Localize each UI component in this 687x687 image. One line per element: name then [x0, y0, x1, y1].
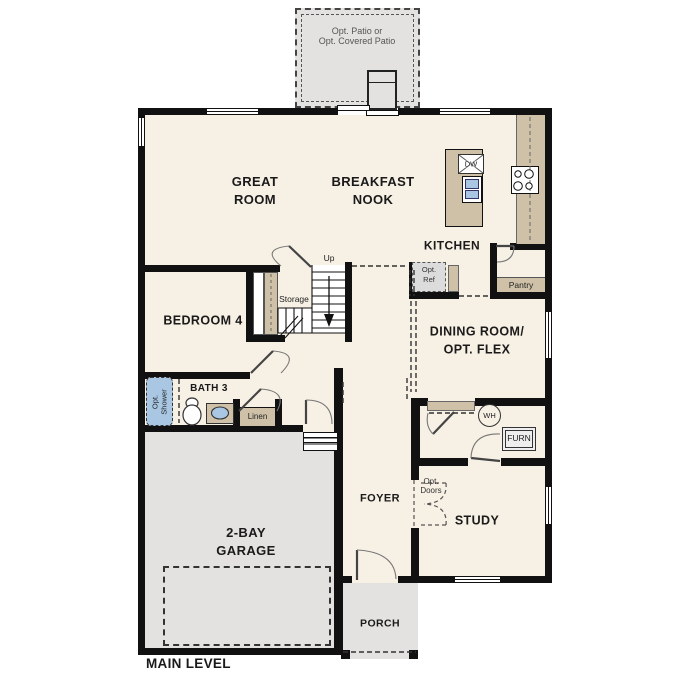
water-heater-label: WH — [483, 411, 496, 420]
kitchen-window — [440, 108, 490, 115]
wall-stair-right — [345, 262, 352, 342]
great-room-window — [207, 108, 258, 115]
wall-garage-bottom — [138, 648, 343, 655]
opt-ref-line2: Ref — [413, 275, 445, 285]
wall-closet-bottom — [246, 335, 285, 342]
patio-label: Opt. Patio or Opt. Covered Patio — [319, 26, 396, 46]
bath3-label: BATH 3 — [190, 382, 228, 396]
wall-pantry-left — [490, 243, 497, 296]
great-room-side-window — [138, 118, 145, 146]
step-line-2 — [304, 438, 337, 443]
wall-counter-pantry-top — [510, 243, 545, 250]
utility-closet-shelf — [427, 401, 475, 411]
bedroom4-label: BEDROOM 4 — [163, 312, 242, 330]
furnace-inner: FURN — [505, 430, 533, 448]
main-level-title: MAIN LEVEL — [146, 655, 231, 674]
dishwasher-label: DW — [465, 160, 478, 169]
furnace: FURN — [502, 427, 536, 451]
garage-door-outline — [163, 566, 331, 646]
opt-shower-label: Opt. Shower — [151, 389, 169, 414]
dining-room-label: DINING ROOM/ OPT. FLEX — [430, 324, 524, 359]
opt-shower: Opt. Shower — [146, 377, 173, 426]
dining-window — [545, 312, 552, 358]
bath-vanity — [206, 403, 234, 424]
wall-garage-right — [334, 368, 343, 648]
foyer-label: FOYER — [360, 491, 400, 506]
linen-closet: Linen — [240, 407, 275, 426]
study-label: STUDY — [455, 512, 499, 530]
bedroom-closet-track — [253, 272, 264, 335]
sink-basin-bottom — [465, 190, 479, 199]
opt-ref-box: Opt. Ref — [412, 262, 446, 292]
garage-label: 2-BAY GARAGE — [216, 524, 275, 560]
wall-linen-right — [275, 399, 282, 426]
wall-bath-linen-divider — [233, 399, 240, 425]
cooktop — [511, 166, 539, 194]
garage-entry-door-gap — [303, 425, 334, 432]
stairs-up-label: Up — [324, 253, 335, 263]
sliding-door-panel-inner — [366, 110, 399, 116]
opt-doors-label: Opt. Doors — [420, 477, 441, 495]
wall-kitchen-dining — [409, 292, 459, 299]
wall-foyer-study-upper — [411, 458, 419, 480]
patio-step — [367, 70, 397, 110]
floor-plan: Opt. Ref Pantry Opt. Shower Linen WH FUR… — [0, 0, 687, 687]
opt-ref-line1: Opt. — [413, 265, 445, 275]
patio-step-tread-line — [369, 72, 395, 83]
wall-pantry-bottom — [490, 292, 552, 299]
study-bottom-window — [455, 576, 500, 583]
pantry-floor: Pantry — [497, 277, 545, 292]
wall-foyer-study-lower — [411, 528, 419, 583]
porch-label: PORCH — [360, 617, 400, 632]
bedroom-closet-shelf — [264, 272, 278, 335]
pantry-label: Pantry — [509, 280, 534, 290]
linen-label: Linen — [248, 412, 268, 421]
breakfast-nook-label: BREAKFAST NOOK — [331, 173, 414, 209]
great-room-label: GREAT ROOM — [232, 173, 279, 209]
storage-label: Storage — [279, 294, 309, 304]
stair-landing-floor — [278, 308, 312, 333]
wall-bedroom-right — [246, 265, 253, 342]
porch-post-left — [341, 650, 350, 659]
garage-entry-steps — [303, 432, 338, 451]
sink-basin-top — [465, 179, 479, 189]
wall-greatroom-bedroom — [145, 265, 280, 272]
wall-utility-closet-left — [411, 398, 420, 458]
kitchen-label: KITCHEN — [424, 238, 480, 255]
wall-exterior-left — [138, 108, 145, 655]
stairwell-floor — [312, 265, 345, 333]
water-heater: WH — [478, 404, 501, 427]
ref-side-counter — [448, 265, 459, 292]
study-side-window — [545, 487, 552, 524]
front-door-gap — [352, 576, 398, 583]
island-sink — [462, 176, 482, 203]
furnace-label: FURN — [507, 433, 531, 443]
patio-slab — [295, 8, 420, 108]
study-door-gap — [468, 458, 501, 466]
porch-post-right — [409, 650, 418, 659]
